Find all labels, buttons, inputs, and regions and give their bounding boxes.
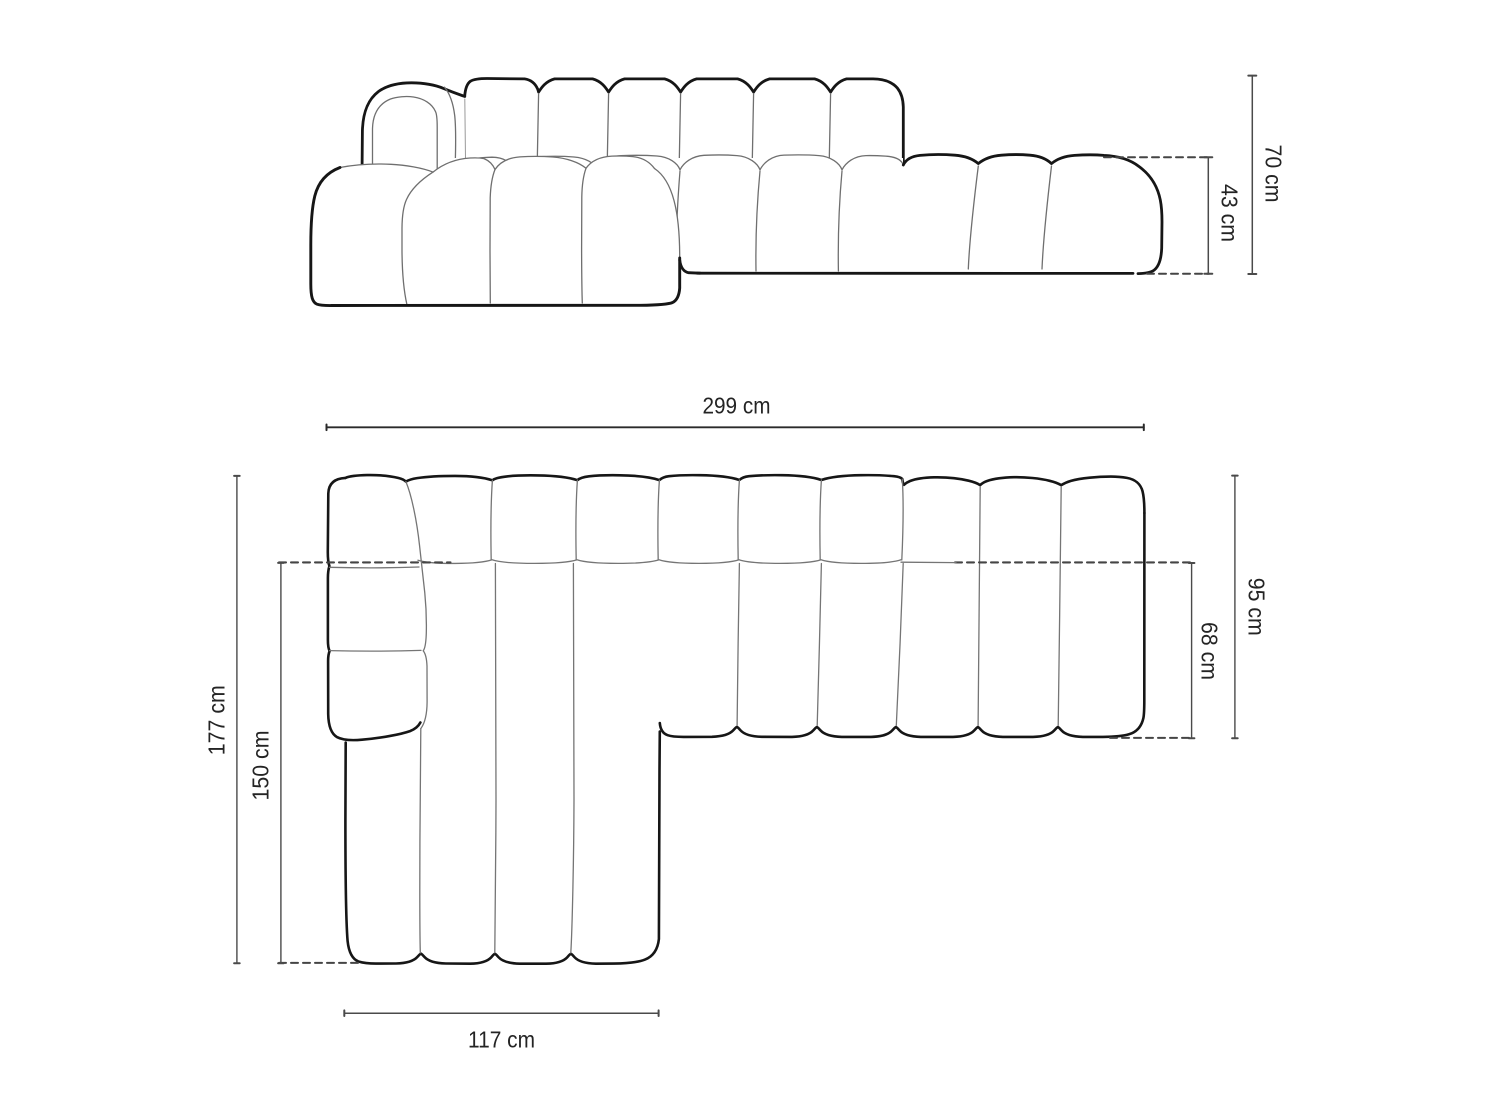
svg-text:70 cm: 70 cm [1261,145,1287,203]
svg-text:68 cm: 68 cm [1197,622,1223,680]
svg-text:95 cm: 95 cm [1244,578,1270,636]
svg-text:177 cm: 177 cm [204,685,230,755]
svg-text:299 cm: 299 cm [703,393,771,419]
svg-text:150 cm: 150 cm [247,731,273,801]
svg-text:117 cm: 117 cm [468,1027,535,1053]
svg-text:43 cm: 43 cm [1217,184,1243,242]
